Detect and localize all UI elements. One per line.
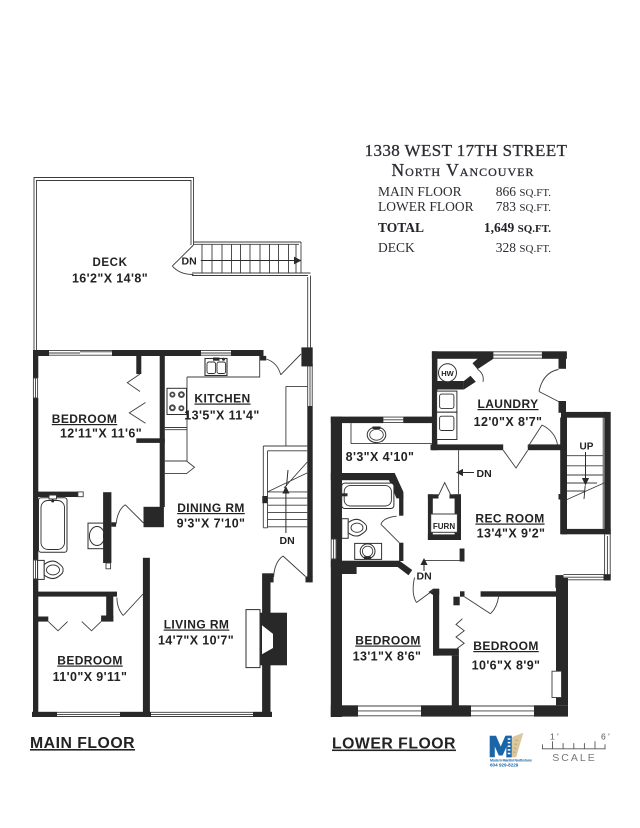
- svg-text:BEDROOM: BEDROOM: [473, 639, 538, 653]
- svg-text:13'1"X 8'6": 13'1"X 8'6": [353, 650, 422, 664]
- svg-text:DN: DN: [477, 468, 492, 480]
- svg-text:FURN: FURN: [433, 522, 455, 531]
- svg-text:6 ': 6 ': [601, 732, 610, 742]
- svg-text:14'7"X 10'7": 14'7"X 10'7": [158, 634, 234, 648]
- svg-text:DECK: DECK: [93, 257, 128, 269]
- svg-text:UP: UP: [580, 442, 594, 453]
- svg-text:1338 WEST 17TH STREET: 1338 WEST 17TH STREET: [365, 141, 568, 160]
- svg-text:DN: DN: [182, 256, 197, 268]
- svg-text:11'0"X 9'11": 11'0"X 9'11": [53, 670, 128, 684]
- svg-text:783 SQ.FT.: 783 SQ.FT.: [496, 199, 551, 214]
- svg-text:KITCHEN: KITCHEN: [194, 392, 250, 406]
- svg-text:12'0"X 8'7": 12'0"X 8'7": [474, 415, 543, 429]
- svg-text:13'5"X 11'4": 13'5"X 11'4": [184, 409, 259, 423]
- svg-text:9'3"X 7'10": 9'3"X 7'10": [177, 517, 246, 531]
- svg-text:MAIN FLOOR: MAIN FLOOR: [30, 735, 135, 752]
- svg-text:10'6"X 8'9": 10'6"X 8'9": [472, 659, 541, 673]
- svg-text:13'4"X 9'2": 13'4"X 9'2": [477, 527, 546, 541]
- svg-text:SCALE: SCALE: [552, 752, 596, 764]
- svg-text:12'11"X 11'6": 12'11"X 11'6": [60, 427, 142, 441]
- svg-text:1 ': 1 ': [550, 732, 559, 742]
- svg-text:866 SQ.FT.: 866 SQ.FT.: [496, 184, 551, 199]
- svg-text:BEDROOM: BEDROOM: [355, 634, 420, 648]
- svg-text:DECK: DECK: [378, 240, 415, 255]
- svg-text:REC ROOM: REC ROOM: [475, 512, 544, 526]
- svg-text:16'2"X 14'8": 16'2"X 14'8": [72, 272, 148, 286]
- svg-text:BEDROOM: BEDROOM: [57, 654, 122, 668]
- svg-text:1,649 SQ.FT.: 1,649 SQ.FT.: [484, 220, 551, 235]
- svg-text:LOWER FLOOR: LOWER FLOOR: [378, 199, 474, 214]
- svg-text:8'3"X 4'10": 8'3"X 4'10": [346, 450, 415, 464]
- svg-text:328 SQ.FT.: 328 SQ.FT.: [496, 240, 551, 255]
- svg-text:LOWER FLOOR: LOWER FLOOR: [332, 736, 456, 753]
- svg-text:North Vancouver: North Vancouver: [392, 160, 535, 180]
- svg-text:HW: HW: [441, 369, 454, 378]
- svg-text:MAIN FLOOR: MAIN FLOOR: [378, 184, 462, 199]
- svg-text:TOTAL: TOTAL: [378, 220, 424, 235]
- svg-text:DN: DN: [280, 535, 295, 547]
- svg-text:DN: DN: [417, 571, 432, 583]
- svg-text:BEDROOM: BEDROOM: [52, 412, 117, 426]
- svg-text:LAUNDRY: LAUNDRY: [477, 397, 538, 411]
- svg-text:LIVING RM: LIVING RM: [164, 618, 230, 632]
- svg-text:DINING RM: DINING RM: [177, 501, 245, 515]
- svg-text:604 929-8229: 604 929-8229: [490, 763, 519, 768]
